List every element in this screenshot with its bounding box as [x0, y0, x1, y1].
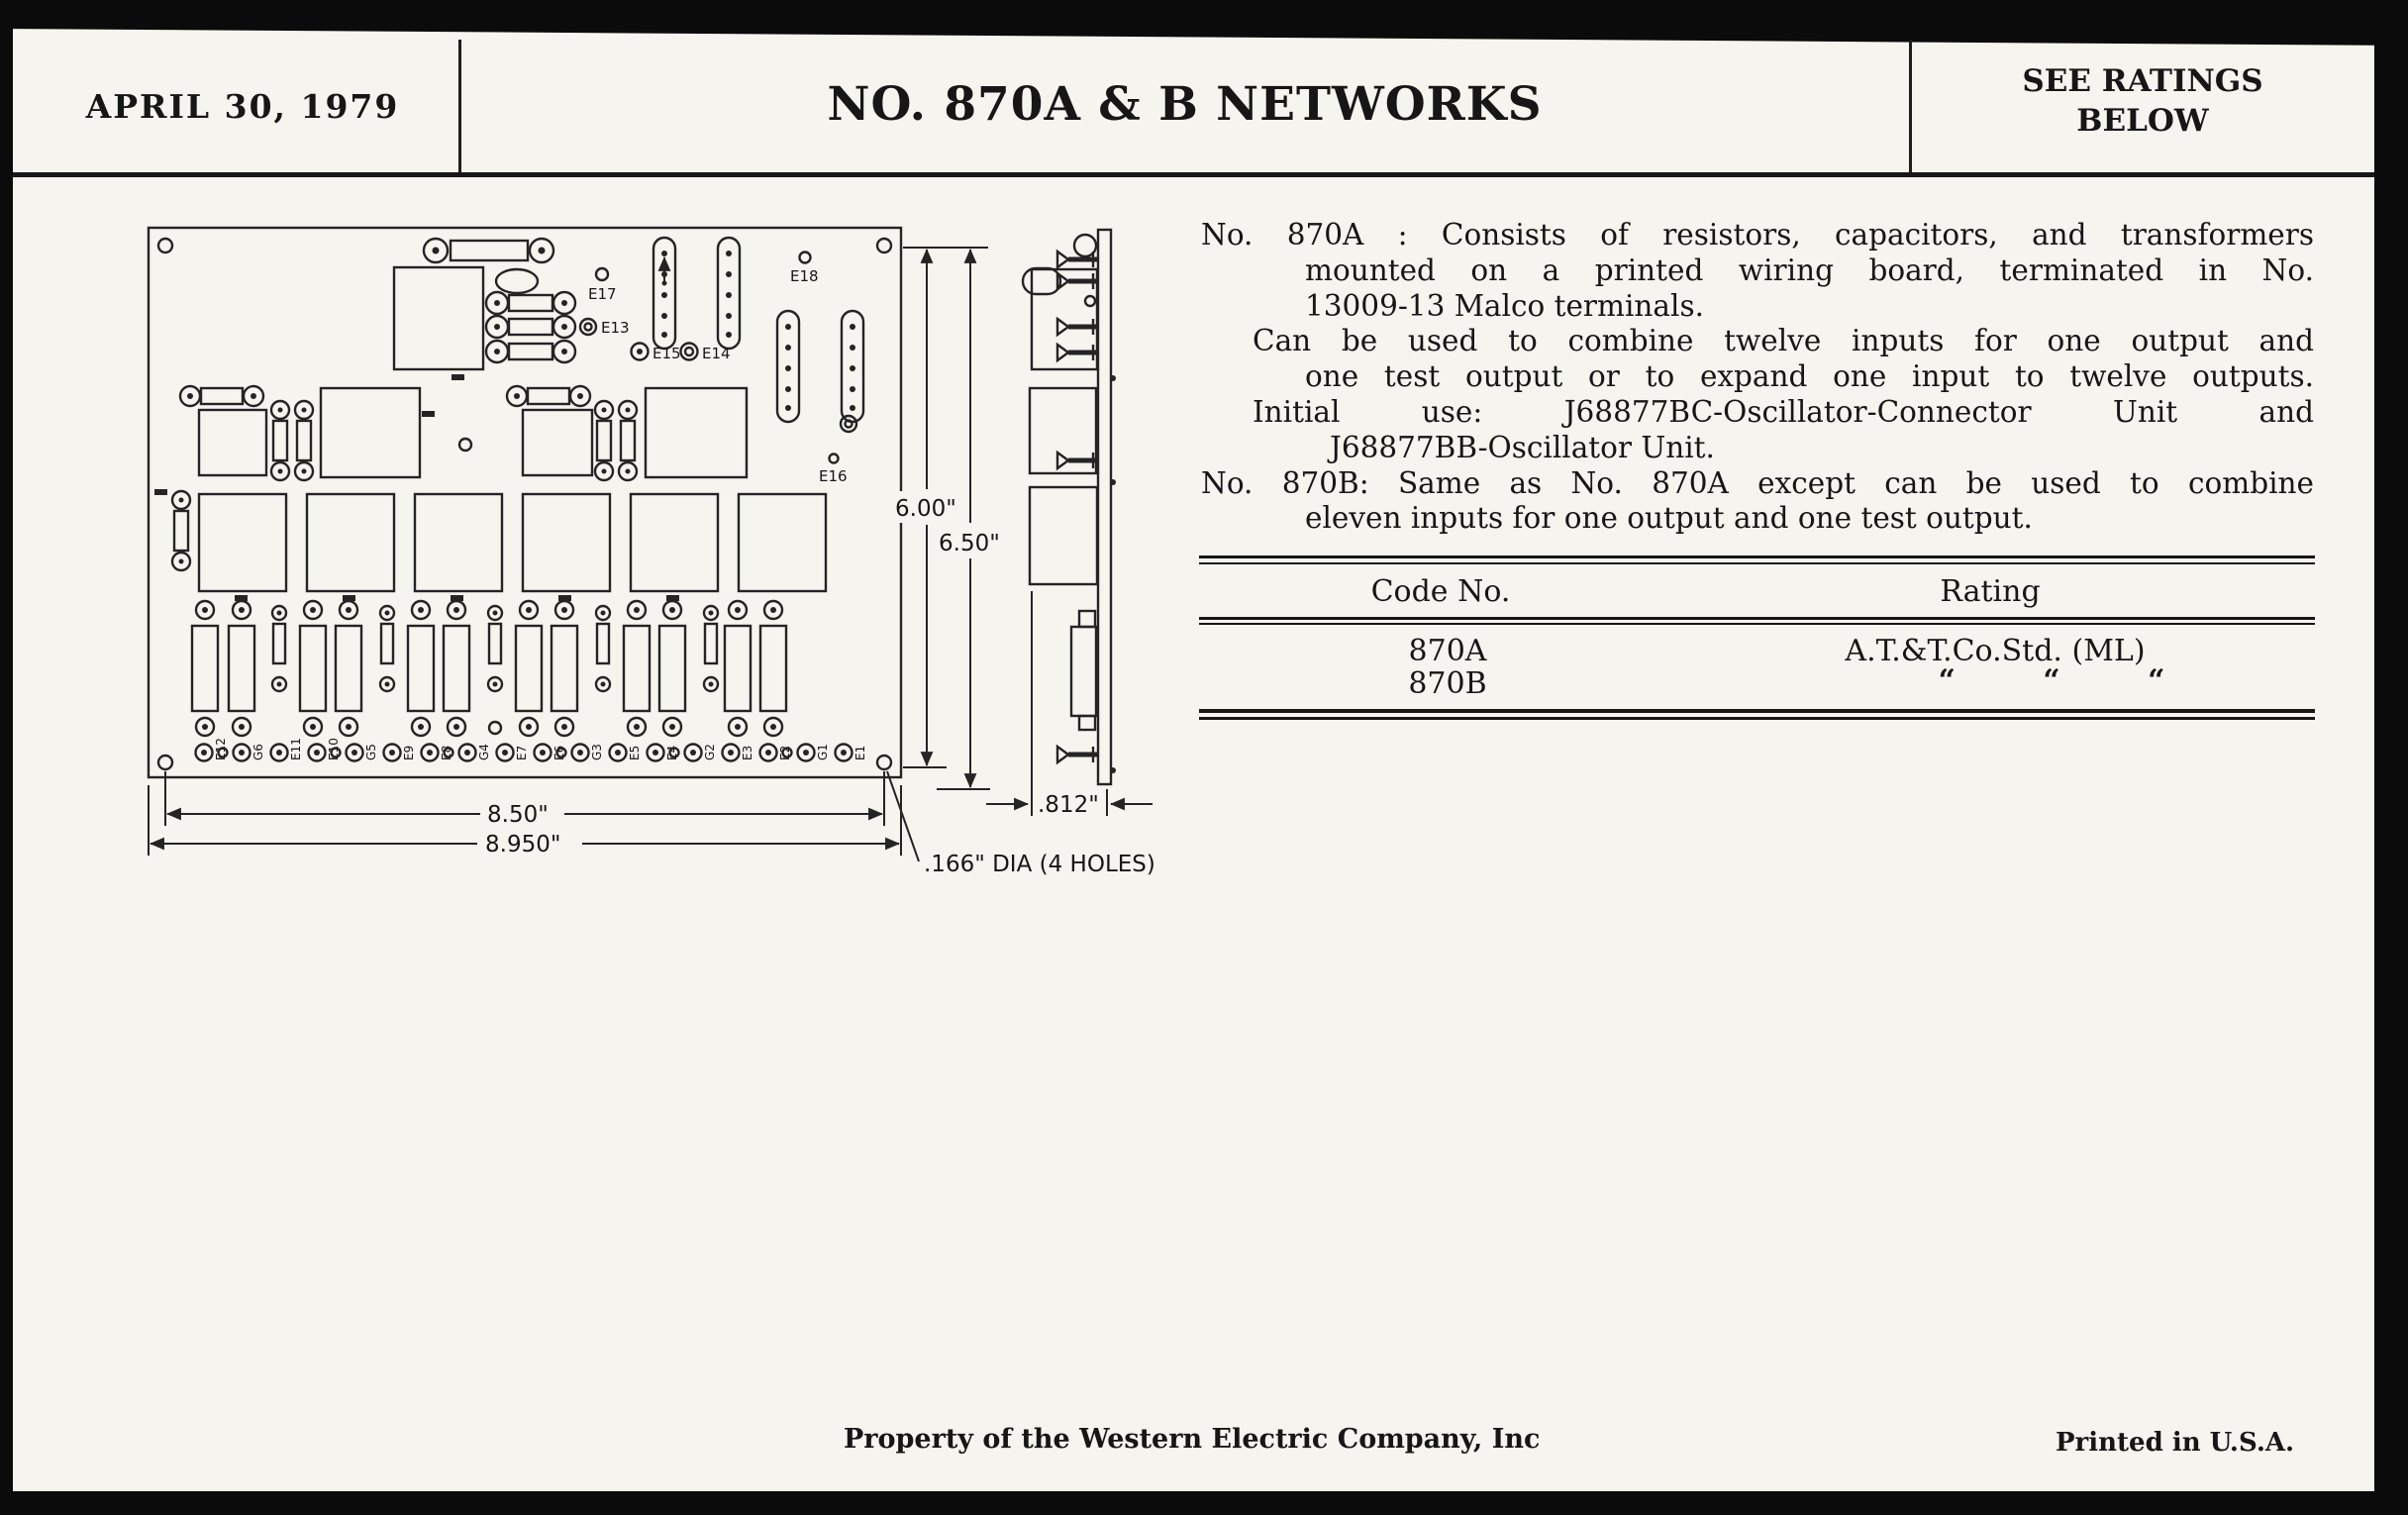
table-rule — [1199, 617, 2315, 620]
board-label-e14: E14 — [702, 345, 731, 362]
table-header-code: Code No. — [1342, 574, 1540, 609]
footer-printed-note: Printed in U.S.A. — [2056, 1428, 2294, 1458]
scan-border-bottom — [0, 1491, 2408, 1515]
description-line: Initial use: J68877BC-Oscillator-Connect… — [1201, 395, 2314, 431]
terminal-label: G4 — [477, 744, 491, 760]
table-rule — [1199, 709, 2315, 713]
description-line: No. 870B: Same as No. 870A except can be… — [1201, 466, 2314, 502]
board-label-e15: E15 — [652, 345, 681, 362]
table-cell-code: 870B — [1349, 666, 1547, 701]
description-line: No. 870A : Consists of resistors, capaci… — [1201, 218, 2314, 253]
technical-drawing: E13 E17 E18 E15 E14 E16 — [139, 220, 1188, 893]
board-front-view: E13 E17 E18 E15 E14 E16 — [149, 228, 901, 777]
terminal-label: E9 — [402, 746, 416, 760]
scan-border-top — [0, 0, 2408, 48]
page-title: NO. 870A & B NETWORKS — [460, 77, 1909, 132]
header-date: APRIL 30, 1979 — [30, 87, 455, 126]
ratings-note: SEE RATINGS BELOW — [1911, 61, 2374, 141]
description-block: No. 870A : Consists of resistors, capaci… — [1201, 218, 2314, 537]
description-line: Can be used to combine twelve inputs for… — [1201, 324, 2314, 359]
dim-8-50: 8.50" — [487, 802, 549, 828]
header-divider-right — [1909, 40, 1912, 173]
terminal-label: E7 — [515, 746, 529, 760]
table-rule — [1199, 623, 2315, 625]
terminal-row: E12G6E11E10G5E9E8G4E7E6G3E5E4G2E3E2G1E1 — [196, 738, 868, 760]
scan-border-right — [2374, 0, 2408, 1515]
table-rule — [1199, 555, 2315, 558]
description-line: J68877BB-Oscillator Unit. — [1201, 431, 2314, 466]
terminal-label: E3 — [741, 746, 754, 760]
footer-property-note: Property of the Western Electric Company… — [844, 1424, 1540, 1455]
dim-6-50: 6.50" — [939, 531, 1000, 556]
terminal-label: E1 — [853, 746, 867, 760]
table-header-rating: Rating — [1891, 574, 2089, 609]
dim-6-00: 6.00" — [895, 496, 956, 522]
dimension-lines-width: 8.50" 8.950" .166" DIA (4 HOLES) — [149, 771, 1155, 877]
terminal-label: G2 — [703, 744, 717, 760]
terminal-label: E11 — [289, 738, 303, 760]
description-line: mounted on a printed wiring board, termi… — [1201, 253, 2314, 289]
terminal-label: G6 — [251, 744, 265, 760]
scan-border-left — [0, 0, 13, 1515]
terminal-label: G5 — [364, 744, 378, 760]
table-cell-code: 870A — [1349, 634, 1547, 668]
dim-812: .812" — [1038, 792, 1099, 818]
description-line: one test output or to expand one input t… — [1201, 359, 2314, 395]
dim-8-950: 8.950" — [485, 832, 560, 858]
board-label-e16: E16 — [819, 467, 848, 485]
table-rule — [1199, 717, 2315, 720]
description-line: eleven inputs for one output and one tes… — [1201, 501, 2314, 537]
ratings-note-line1: SEE RATINGS — [1911, 61, 2374, 101]
board-side-view: .812" — [986, 230, 1153, 818]
board-label-e13: E13 — [601, 319, 630, 337]
board-label-e17: E17 — [588, 285, 617, 303]
terminal-label: G1 — [816, 744, 830, 760]
holes-note: .166" DIA (4 HOLES) — [924, 852, 1155, 877]
ratings-note-line2: BELOW — [1911, 101, 2374, 141]
terminal-label: G3 — [590, 744, 604, 760]
dimension-lines-height: 6.00" 6.50" — [895, 248, 1002, 789]
description-line: 13009-13 Malco terminals. — [1201, 289, 2314, 325]
board-label-e18: E18 — [790, 267, 819, 285]
table-rule — [1199, 562, 2315, 564]
terminal-label: E5 — [628, 746, 642, 760]
header-rule — [13, 172, 2374, 177]
header-divider-left — [458, 40, 461, 173]
table-cell-rating-ditto: “ “ “ — [1804, 663, 2299, 698]
